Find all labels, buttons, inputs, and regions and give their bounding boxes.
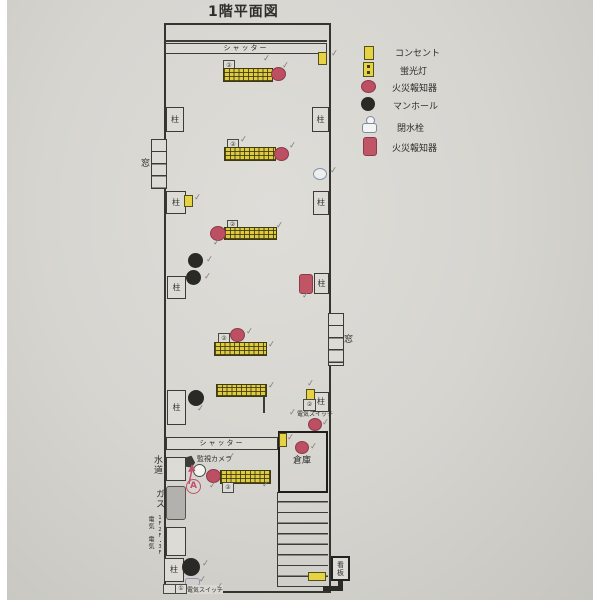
check-mark: ✓ (268, 382, 276, 392)
fire-alarm-5 (308, 418, 322, 431)
pillar: 柱 (167, 276, 186, 299)
electric-switch-label-right: 電気スイッチ (297, 409, 333, 418)
window-right (328, 313, 344, 366)
manhole-4 (182, 558, 200, 576)
signboard-label: 看板 (337, 561, 345, 577)
check-mark: ✓ (263, 55, 271, 65)
shutter-top: シャッター (165, 43, 327, 54)
pillar-label: 柱 (170, 566, 178, 574)
check-mark: ✓ (330, 167, 338, 177)
electric-label-1: 電気 (146, 516, 155, 530)
fluorescent-light-2 (224, 147, 276, 161)
check-mark: ✓ (268, 341, 276, 351)
check-mark: ✓ (289, 142, 297, 152)
manhole-2 (186, 270, 201, 285)
photo-background: 1階平面図 コンセント 蛍光灯 火災報知器 マンホール 閉水栓 火災報知器 シャ… (7, 0, 593, 600)
shutter-top-label: シャッター (224, 45, 269, 52)
electric-box (166, 527, 186, 556)
check-mark: ✓ (216, 583, 224, 593)
fire-alarm-2 (274, 147, 289, 161)
pillar: 柱 (312, 107, 329, 132)
partition-wall (263, 395, 265, 413)
check-mark: ✓ (240, 136, 248, 146)
shutter-bottom-label: シャッター (200, 440, 245, 447)
pillar-label: 柱 (317, 398, 325, 406)
manhole-icon (361, 97, 375, 111)
switch-tag: ① (175, 584, 187, 594)
annotation-a-circle: A (186, 479, 201, 494)
water-box (166, 457, 186, 481)
outlet-pillar-left (184, 195, 193, 207)
pillar-label: 柱 (172, 199, 180, 207)
fire-alarm-icon (361, 80, 376, 93)
legend-label-fire-alarm: 火災報知器 (392, 81, 437, 94)
check-mark: ✓ (322, 419, 330, 429)
pillar-label: 柱 (318, 280, 326, 288)
check-mark: ✓ (204, 273, 212, 283)
legend-label-fluorescent: 蛍光灯 (400, 64, 427, 77)
pillar: 柱 (314, 273, 329, 294)
signboard: 看板 (331, 556, 350, 581)
pillar: 柱 (166, 107, 184, 132)
annotation-a-label: A (190, 482, 197, 491)
fluorescent-light-5 (216, 384, 267, 397)
pillar: 柱 (313, 191, 329, 215)
window-right-label: 窓 (344, 332, 353, 345)
check-mark: ✓ (213, 239, 221, 249)
page-title: 1階平面図 (208, 1, 279, 21)
pillar-label: 柱 (317, 116, 325, 124)
shutter-bottom: シャッター (166, 437, 278, 450)
fluorescent-light-icon (363, 62, 374, 77)
check-mark: ✓ (287, 434, 295, 444)
pillar: 柱 (164, 558, 184, 582)
check-mark: ✓ (289, 409, 297, 419)
legend-label-fire-alarm-2: 火災報知器 (392, 141, 437, 154)
manhole-1 (188, 253, 203, 268)
legend-label-valve: 閉水栓 (397, 121, 424, 134)
window-left-label: 窓 (141, 156, 150, 169)
check-mark: ✓ (310, 443, 318, 453)
check-mark: ✓ (209, 482, 217, 492)
check-mark: ✓ (197, 405, 205, 415)
gas-box (166, 486, 186, 520)
fire-alarm-rect-icon (363, 137, 377, 156)
outlet-bottom-right (308, 572, 326, 581)
fluorescent-light-3 (224, 227, 277, 240)
check-mark: ✓ (246, 328, 254, 338)
outlet-top-right (318, 52, 327, 65)
light-tag-glyph: ② (225, 485, 230, 491)
floors-label: 1F2F・3F (157, 515, 164, 556)
electric-label-2: 電気 (146, 536, 155, 550)
check-mark: ✓ (282, 62, 290, 72)
pillar: 柱 (167, 390, 186, 425)
pillar: 柱 (166, 191, 186, 214)
check-mark: ✓ (199, 576, 207, 586)
water-stop-valve (313, 168, 327, 180)
fluorescent-light-1 (223, 68, 273, 82)
gas-label: ガス (153, 489, 166, 509)
switch-tag-glyph: ① (178, 586, 183, 592)
check-mark: ✓ (202, 560, 210, 570)
pillar-label: 柱 (171, 116, 179, 124)
light-tag: ② (222, 482, 234, 493)
top-inner-wall (165, 40, 327, 42)
check-mark: ✓ (262, 481, 270, 491)
check-mark: ✓ (276, 222, 284, 232)
check-mark: ✓ (307, 380, 315, 390)
check-mark: ✓ (194, 194, 202, 204)
legend-label-outlet: コンセント (395, 46, 440, 59)
pillar-label: 柱 (173, 404, 181, 412)
camera-label: 監視カメラ (197, 454, 232, 464)
water-label: 水道 (151, 455, 164, 475)
fire-alarm-4 (230, 328, 245, 342)
check-mark: ✓ (302, 292, 310, 302)
switch-tag-glyph: ② (307, 402, 312, 408)
pillar-label: 柱 (173, 284, 181, 292)
water-stop-valve-icon (362, 116, 378, 133)
check-mark: ✓ (228, 453, 236, 463)
check-mark: ✓ (331, 50, 339, 60)
fluorescent-light-4 (214, 342, 267, 356)
check-mark: ✓ (206, 256, 214, 266)
storage-label: 倉庫 (293, 453, 311, 466)
legend-label-manhole: マンホール (393, 99, 438, 112)
window-left (151, 139, 167, 189)
pillar-label: 柱 (317, 199, 325, 207)
outlet-icon (364, 46, 374, 60)
light-tag-glyph: ② (221, 336, 226, 342)
